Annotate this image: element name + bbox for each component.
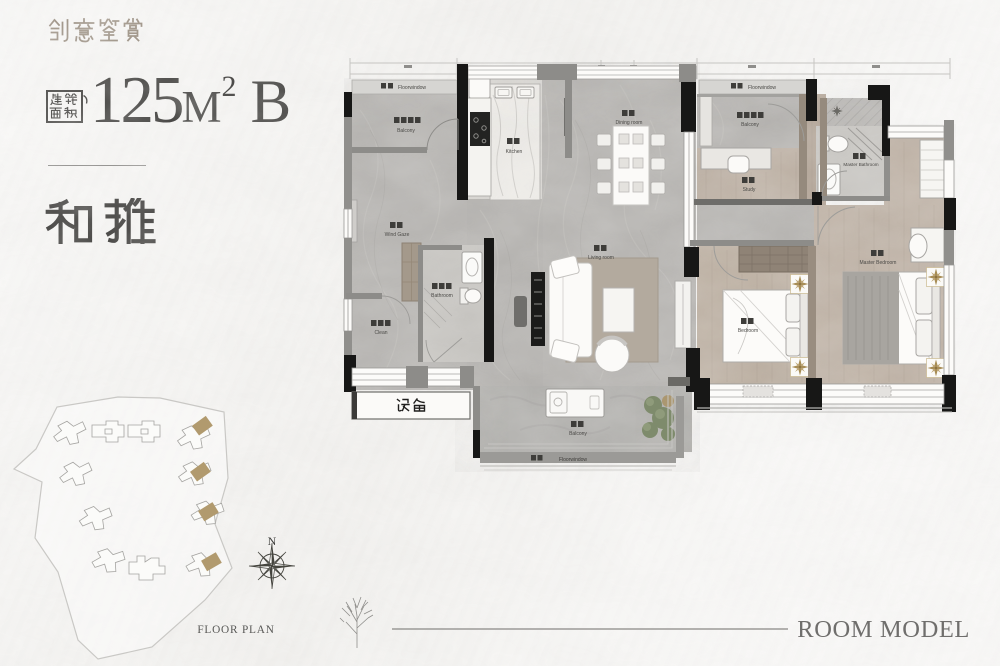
svg-text:N: N <box>268 534 277 548</box>
svg-text:Balcony: Balcony <box>741 122 759 128</box>
svg-text:Floorwindow: Floorwindow <box>398 85 426 91</box>
svg-text:Floorwindow: Floorwindow <box>748 85 776 91</box>
svg-text:Balcony: Balcony <box>569 431 587 437</box>
svg-text:Clean: Clean <box>374 330 387 336</box>
svg-text:ROOM MODEL: ROOM MODEL <box>797 616 970 643</box>
svg-text:Dining room: Dining room <box>616 120 643 126</box>
svg-text:Master Bathroom: Master Bathroom <box>843 162 878 167</box>
svg-text:Balcony: Balcony <box>397 128 415 134</box>
svg-text:Bedroom: Bedroom <box>738 328 758 334</box>
svg-text:Bathroom: Bathroom <box>431 293 453 299</box>
svg-text:Floorwindow: Floorwindow <box>559 457 587 463</box>
svg-text:Study: Study <box>743 187 756 193</box>
svg-text:Master Bedroom: Master Bedroom <box>860 260 897 266</box>
svg-text:Wind Gaze: Wind Gaze <box>385 232 410 238</box>
svg-text:FLOOR PLAN: FLOOR PLAN <box>197 624 274 636</box>
svg-text:Kitchen: Kitchen <box>506 149 523 155</box>
svg-text:Living room: Living room <box>588 255 614 261</box>
